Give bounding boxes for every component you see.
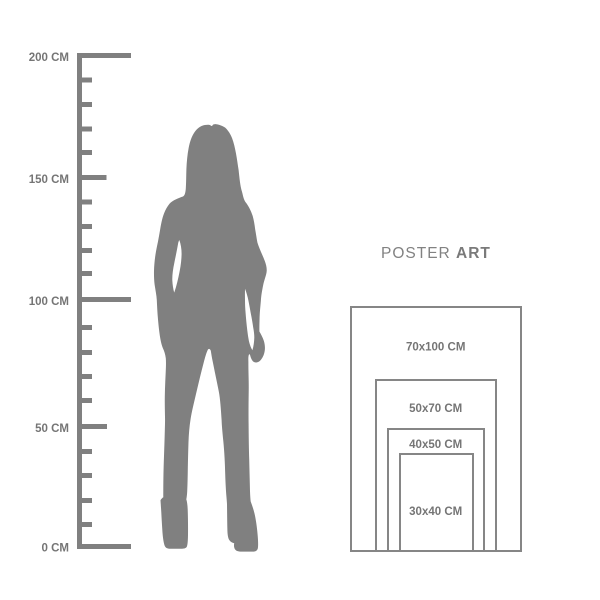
- svg-text:150 CM: 150 CM: [29, 174, 69, 186]
- svg-text:0 CM: 0 CM: [42, 543, 69, 555]
- svg-text:30x40 CM: 30x40 CM: [409, 506, 462, 518]
- svg-text:200 CM: 200 CM: [29, 52, 69, 64]
- svg-text:70x100 CM: 70x100 CM: [406, 342, 465, 354]
- svg-text:POSTER ART: POSTER ART: [381, 245, 491, 262]
- svg-text:50 CM: 50 CM: [35, 423, 69, 435]
- svg-text:100 CM: 100 CM: [29, 296, 69, 308]
- svg-text:50x70 CM: 50x70 CM: [409, 403, 462, 415]
- svg-text:40x50 CM: 40x50 CM: [409, 439, 462, 451]
